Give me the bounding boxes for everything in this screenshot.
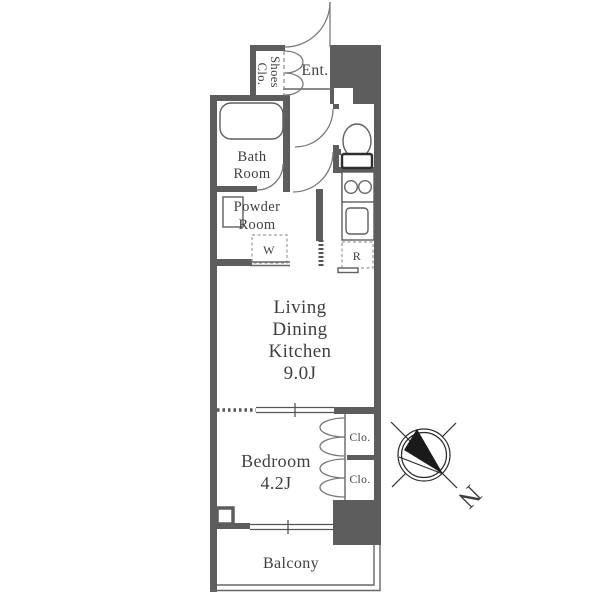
bedroom-label-line2: 4.2J xyxy=(260,473,291,493)
compass xyxy=(391,422,457,488)
closet-upper-label: Clo. xyxy=(349,432,370,444)
ldk-bedroom-window xyxy=(217,403,334,417)
powder-room-label-line1: Powder xyxy=(234,199,281,215)
shoes-closet-label-line2: Clo. xyxy=(255,63,269,86)
hall-door-arc xyxy=(293,152,333,192)
bathroom-label-line2: Room xyxy=(233,166,270,182)
refrigerator-label: R xyxy=(353,249,361,263)
ent-label: Ent. xyxy=(302,62,329,79)
powder-room-label-line2: Room xyxy=(238,217,275,233)
floor-plan: Ent. Shoes Clo. Bath Room Powder Room W … xyxy=(0,0,600,600)
ldk-label-line1: Living xyxy=(273,297,326,318)
shoes-closet-label-line1: Shoes xyxy=(268,56,282,88)
ldk-label-line3: Kitchen xyxy=(269,341,332,362)
bedroom-closets xyxy=(320,413,345,500)
toilet-door-arc xyxy=(295,109,333,147)
bathroom-label-line1: Bath xyxy=(238,149,267,165)
ldk-label-line2: Dining xyxy=(272,319,327,340)
balcony-label: Balcony xyxy=(263,555,319,572)
kitchen-sink xyxy=(346,208,368,234)
shoes-closet-door-arc xyxy=(285,51,303,73)
toilet-tank xyxy=(342,154,372,168)
closet-divider-wall xyxy=(347,455,374,460)
bathtub xyxy=(220,103,283,139)
balcony-window xyxy=(250,520,333,534)
closet-bifold-arc xyxy=(320,418,345,437)
closet-bifold-arc xyxy=(320,437,345,456)
closet-lower-label: Clo. xyxy=(349,474,370,486)
north-label: N xyxy=(452,479,487,514)
bedroom-label-line1: Bedroom xyxy=(241,451,311,471)
ldk-label-line4: 9.0J xyxy=(284,363,317,384)
closet-bifold-arc xyxy=(320,459,345,478)
floor-plan-drawing: Ent. Shoes Clo. Bath Room Powder Room W … xyxy=(0,0,600,600)
closet-bifold-arc xyxy=(320,478,345,497)
shoes-closet-door-arc xyxy=(285,73,303,95)
ps-box xyxy=(217,508,233,524)
pillar-bottom-right xyxy=(333,500,381,545)
north-arrow xyxy=(404,429,443,474)
washer-label: W xyxy=(263,243,275,257)
counter-handle xyxy=(338,268,358,273)
